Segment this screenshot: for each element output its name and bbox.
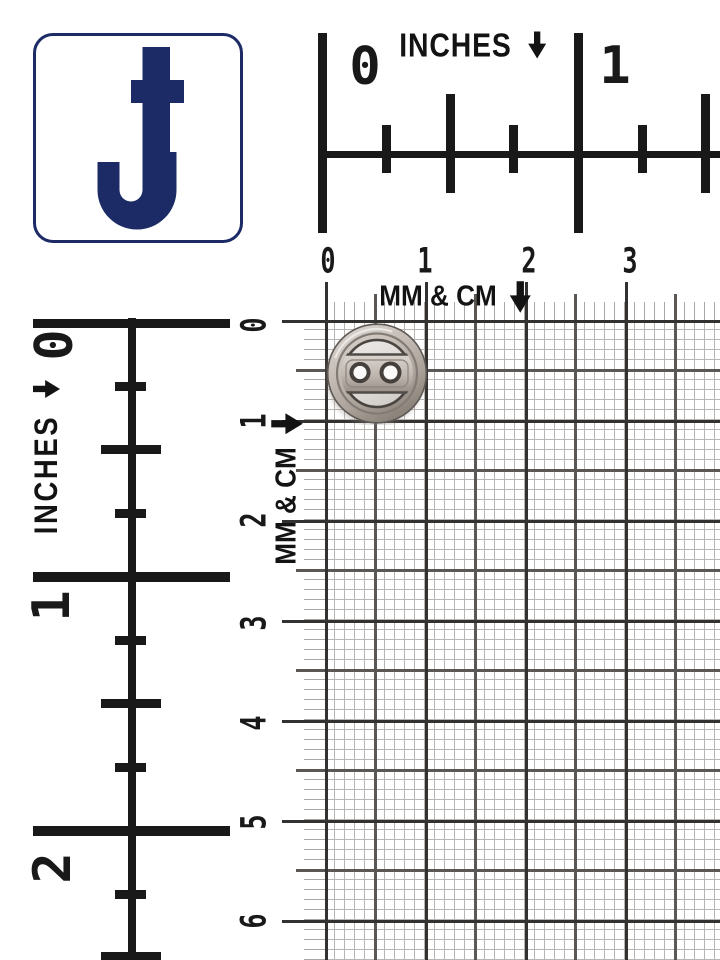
down-arrow-icon <box>528 32 546 59</box>
tick-half <box>446 94 455 193</box>
tick-1in <box>574 33 583 233</box>
tick-quarter <box>638 125 647 173</box>
sewing-button-photo <box>325 321 429 425</box>
mm-cm-text: MM & CM <box>273 447 302 564</box>
inch-number-0: 0 <box>349 41 380 93</box>
tick-quarter <box>115 636 146 645</box>
cm-number-y2: 2 <box>238 512 273 527</box>
product-measurement-photo: 0 1 INCHES 0 1 2 INCHES <box>0 0 720 960</box>
button-hole-right <box>382 364 400 382</box>
tick-quarter <box>115 763 146 772</box>
inch-number-0: 0 <box>29 329 81 360</box>
cm-number-x1: 1 <box>417 245 432 280</box>
tick-half <box>101 952 161 960</box>
inches-text: INCHES <box>399 29 511 62</box>
tick-half <box>101 699 161 708</box>
tick-half <box>701 94 710 193</box>
cm-number-x0: 0 <box>320 245 335 280</box>
tick-half <box>101 445 161 454</box>
logo-letter-j-icon <box>36 36 240 240</box>
inch-number-2: 2 <box>27 852 79 883</box>
cm-number-y5: 5 <box>238 814 273 829</box>
cm-number-x3: 3 <box>622 245 637 280</box>
cm-number-y1: 1 <box>238 413 273 428</box>
tick-quarter <box>115 890 146 899</box>
cm-number-y4: 4 <box>238 715 273 730</box>
inches-text: INCHES <box>30 415 62 534</box>
down-arrow-icon <box>33 380 60 398</box>
inch-number-1: 1 <box>599 40 630 92</box>
tick-0in <box>318 33 327 233</box>
ruler-baseline <box>318 151 720 158</box>
tick-quarter <box>382 125 391 173</box>
tick-1in <box>33 572 230 582</box>
tick-quarter <box>115 382 146 391</box>
tick-2in <box>33 826 230 836</box>
cm-number-y6: 6 <box>238 913 273 928</box>
tick-quarter <box>115 509 146 518</box>
left-mm-cm-label: MM & CM <box>271 413 304 571</box>
top-inches-label: INCHES <box>390 29 546 62</box>
top-mm-cm-label: MM & CM <box>373 281 531 314</box>
button-hole-left <box>351 364 368 381</box>
brand-logo <box>33 33 243 243</box>
down-arrow-icon <box>510 281 531 314</box>
mm-cm-text: MM & CM <box>379 283 496 312</box>
tick-quarter <box>509 125 518 173</box>
cm-number-y0: 0 <box>238 317 273 332</box>
left-inches-label: INCHES <box>30 380 62 544</box>
tick-0in <box>33 319 230 328</box>
cm-number-x2: 2 <box>521 245 536 280</box>
cm-number-y3: 3 <box>238 615 273 630</box>
down-arrow-icon <box>271 413 304 434</box>
inch-number-1: 1 <box>26 590 78 621</box>
